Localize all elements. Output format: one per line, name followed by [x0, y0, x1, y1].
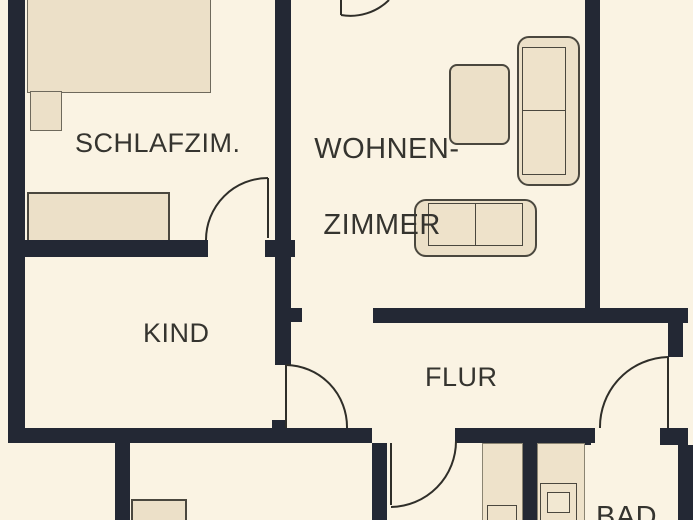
living-door-arc	[341, 0, 389, 16]
child-door-arc	[286, 365, 347, 428]
sofa-right-cushions	[522, 47, 566, 175]
living-room-label: WOHNEN- ZIMMER	[280, 92, 450, 282]
wall-bottom-left	[8, 428, 372, 443]
hall-label: FLUR	[425, 362, 498, 393]
wardrobe	[27, 192, 170, 242]
entrance-door-arc	[600, 357, 668, 428]
floor-plan: SCHLAFZIM. WOHNEN- ZIMMER KIND FLUR BAD	[0, 0, 693, 520]
bath-fixture-small	[487, 505, 517, 520]
wall-stub-bath	[523, 443, 537, 520]
kitchen-counter	[131, 499, 187, 520]
bad-door-jamb	[585, 438, 591, 445]
bath-label: BAD	[596, 501, 657, 520]
living-label-line1: WOHNEN-	[314, 133, 459, 165]
washer-inner	[547, 492, 570, 513]
living-label-line2: ZIMMER	[323, 209, 440, 241]
sofa-right	[517, 36, 580, 186]
wall-entry-corner	[660, 428, 688, 445]
wall-stub-mid	[372, 443, 387, 520]
wall-stub-kitchen	[115, 443, 130, 520]
outer-wall-left	[8, 0, 25, 443]
bedroom-door-arc	[206, 178, 268, 240]
sofa-cushion-divider	[475, 204, 476, 245]
wall-bedroom-child	[8, 240, 208, 257]
kitchen-door-arc	[391, 441, 456, 507]
bedroom-label: SCHLAFZIM.	[75, 128, 241, 159]
child-room-label: KIND	[143, 318, 210, 349]
sofa-cushion-divider	[523, 110, 565, 111]
wall-entry-right-upper	[668, 323, 683, 357]
wall-living-right	[585, 0, 600, 315]
outer-wall-right-lower	[678, 445, 693, 520]
nightstand	[30, 91, 62, 131]
wall-notch	[291, 308, 302, 322]
wall-bottom-mid	[455, 428, 595, 443]
double-bed	[27, 0, 211, 93]
wall-hall-top	[373, 308, 688, 323]
